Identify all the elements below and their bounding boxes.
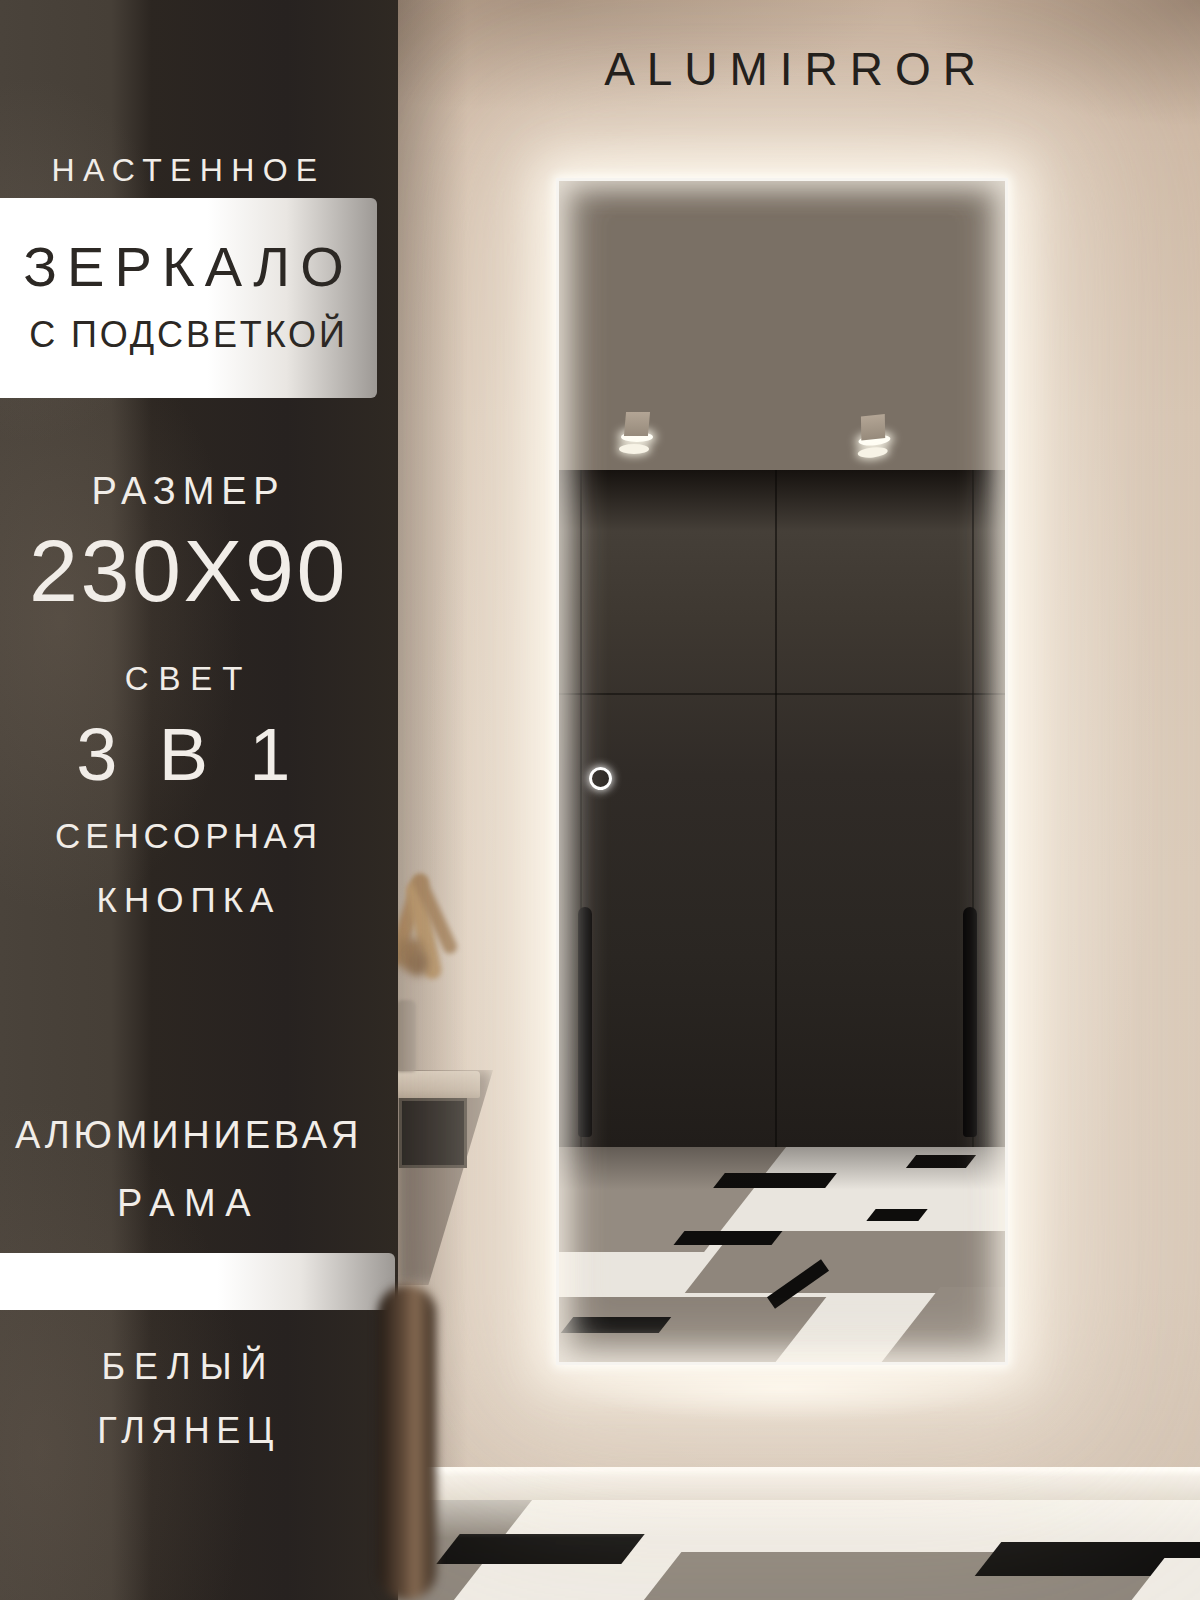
spotlight-light — [857, 446, 888, 459]
title-banner: ЗЕРКАЛО С ПОДСВЕТКОЙ — [0, 198, 377, 398]
backlight-label: С ПОДСВЕТКОЙ — [0, 314, 377, 356]
frame-feature-line1: АЛЮМИНИЕВАЯ — [0, 1114, 377, 1157]
light-value: 3 В 1 — [0, 712, 377, 797]
light-label: СВЕТ — [0, 660, 377, 698]
size-label: РАЗМЕР — [0, 470, 377, 513]
wardrobe-reflection — [559, 470, 1005, 1147]
color-feature-line1: БЕЛЫЙ — [0, 1346, 377, 1388]
ceiling-reflection — [559, 181, 1005, 470]
floor-reflection — [559, 1147, 1005, 1362]
wardrobe-edge-light — [987, 470, 1005, 1147]
size-value: 230X90 — [0, 520, 377, 622]
wardrobe-seam — [559, 693, 1005, 695]
frame-feature-line2: РАМА — [0, 1182, 377, 1225]
foreground-blur-object — [378, 1285, 436, 1600]
led-underglow — [505, 1362, 1065, 1447]
plant-stem — [408, 952, 428, 976]
spotlight-light — [619, 444, 649, 454]
touch-button-indicator — [589, 767, 612, 790]
product-showcase-image: НАСТЕННОЕ ЗЕРКАЛО С ПОДСВЕТКОЙ РАЗМЕР 23… — [0, 0, 1200, 1600]
wall-mounted-label: НАСТЕННОЕ — [0, 152, 377, 189]
baseboard — [398, 1467, 1200, 1500]
product-title: ЗЕРКАЛО — [0, 234, 377, 299]
wardrobe-handle — [578, 907, 592, 1137]
info-panel: НАСТЕННОЕ ЗЕРКАЛО С ПОДСВЕТКОЙ РАЗМЕР 23… — [0, 0, 398, 1600]
led-mirror — [556, 178, 1008, 1365]
ceiling-spotlight — [860, 414, 892, 459]
spotlight-fixture — [861, 414, 885, 441]
brand-logo: ALUMIRROR — [566, 42, 1026, 96]
floor-shadow — [559, 1147, 1005, 1362]
console-drawer — [399, 1098, 467, 1168]
touch-feature-line2: КНОПКА — [0, 880, 377, 920]
floor-light-reflection — [398, 1500, 1200, 1600]
ceiling-spotlight — [625, 412, 653, 454]
spotlight-fixture — [624, 412, 650, 436]
touch-feature-line1: СЕНСОРНАЯ — [0, 816, 377, 856]
divider-banner — [0, 1253, 395, 1310]
color-feature-line2: ГЛЯНЕЦ — [0, 1410, 377, 1452]
vase — [396, 1000, 416, 1072]
wardrobe-handle — [963, 907, 977, 1137]
wardrobe-seam — [775, 470, 777, 1147]
hallway-floor — [398, 1500, 1200, 1600]
console-tabletop — [398, 1071, 480, 1098]
